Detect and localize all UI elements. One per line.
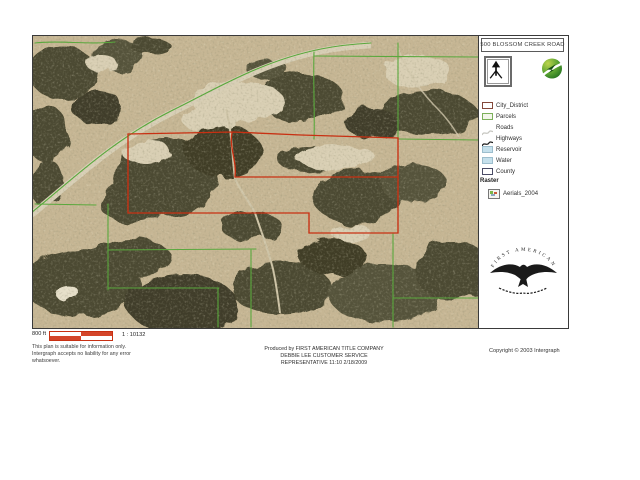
map-title: 500 BLOSSOM CREEK ROAD (480, 42, 564, 48)
legend-label: County (496, 169, 515, 175)
disclaimer-text: This plan is suitable for information on… (32, 344, 202, 365)
north-arrow-icon (486, 58, 506, 81)
scale-bar-label: 800 ft (32, 331, 46, 337)
production-credits: Produced by FIRST AMERICAN TITLE COMPANY… (214, 346, 434, 367)
copyright-text: Copyright © 2003 Intergraph (489, 348, 560, 354)
plat-frame: 500 BLOSSOM CREEK ROAD (32, 35, 569, 329)
legend-item-reservoir: Reservoir (482, 144, 566, 155)
disclaimer-line: whatsoever. (32, 358, 202, 365)
scale-ratio: 1 : 10132 (122, 332, 145, 338)
scale-bar (49, 331, 113, 341)
map-title-box: 500 BLOSSOM CREEK ROAD (481, 38, 564, 52)
reservoir-swatch (482, 146, 493, 153)
map-side-panel: 500 BLOSSOM CREEK ROAD (479, 36, 568, 328)
legend-item-water: Water (482, 155, 566, 166)
produced-line: DEBBIE LEE CUSTOMER SERVICE (214, 353, 434, 360)
produced-line: Produced by FIRST AMERICAN TITLE COMPANY (214, 346, 434, 353)
disclaimer-line: This plan is suitable for information on… (32, 344, 202, 351)
legend-label: Roads (496, 125, 513, 131)
legend-item-city-district: City_District (482, 100, 566, 111)
legend-item-aerials-2004: Aerials_2004 (488, 188, 538, 199)
legend-item-highways: Highways (482, 133, 566, 144)
aerial-map-area (33, 36, 479, 328)
city-district-swatch (482, 102, 493, 109)
texture-light (33, 36, 478, 328)
produced-line: REPRESENTATIVE 11:10 2/18/2009 (214, 360, 434, 367)
legend-label: Water (496, 158, 512, 164)
roads-swatch (482, 124, 493, 131)
legend-label: Highways (496, 136, 522, 142)
water-swatch (482, 157, 493, 164)
legend-label: City_District (496, 103, 528, 109)
map-legend: City_District Parcels Roads Highway (482, 100, 566, 177)
parcels-swatch (482, 113, 493, 120)
plat-page: 500 BLOSSOM CREEK ROAD (0, 0, 640, 480)
legend-label: Aerials_2004 (503, 191, 538, 197)
legend-label: Parcels (496, 114, 516, 120)
highways-swatch (482, 135, 493, 142)
north-arrow-box (484, 56, 512, 87)
aerial-map (33, 36, 478, 328)
legend-raster-heading: Raster (480, 178, 499, 184)
legend-item-parcels: Parcels (482, 111, 566, 122)
disclaimer-line: Intergraph accepts no liability for any … (32, 351, 202, 358)
geomedia-leaf-icon (540, 57, 564, 80)
legend-item-roads: Roads (482, 122, 566, 133)
legend-item-county: County (482, 166, 566, 177)
first-american-eagle-logo: FIRST AMERICAN (484, 233, 563, 297)
county-swatch (482, 168, 493, 175)
raster-thumbnail-icon (488, 189, 500, 199)
legend-label: Reservoir (496, 147, 522, 153)
